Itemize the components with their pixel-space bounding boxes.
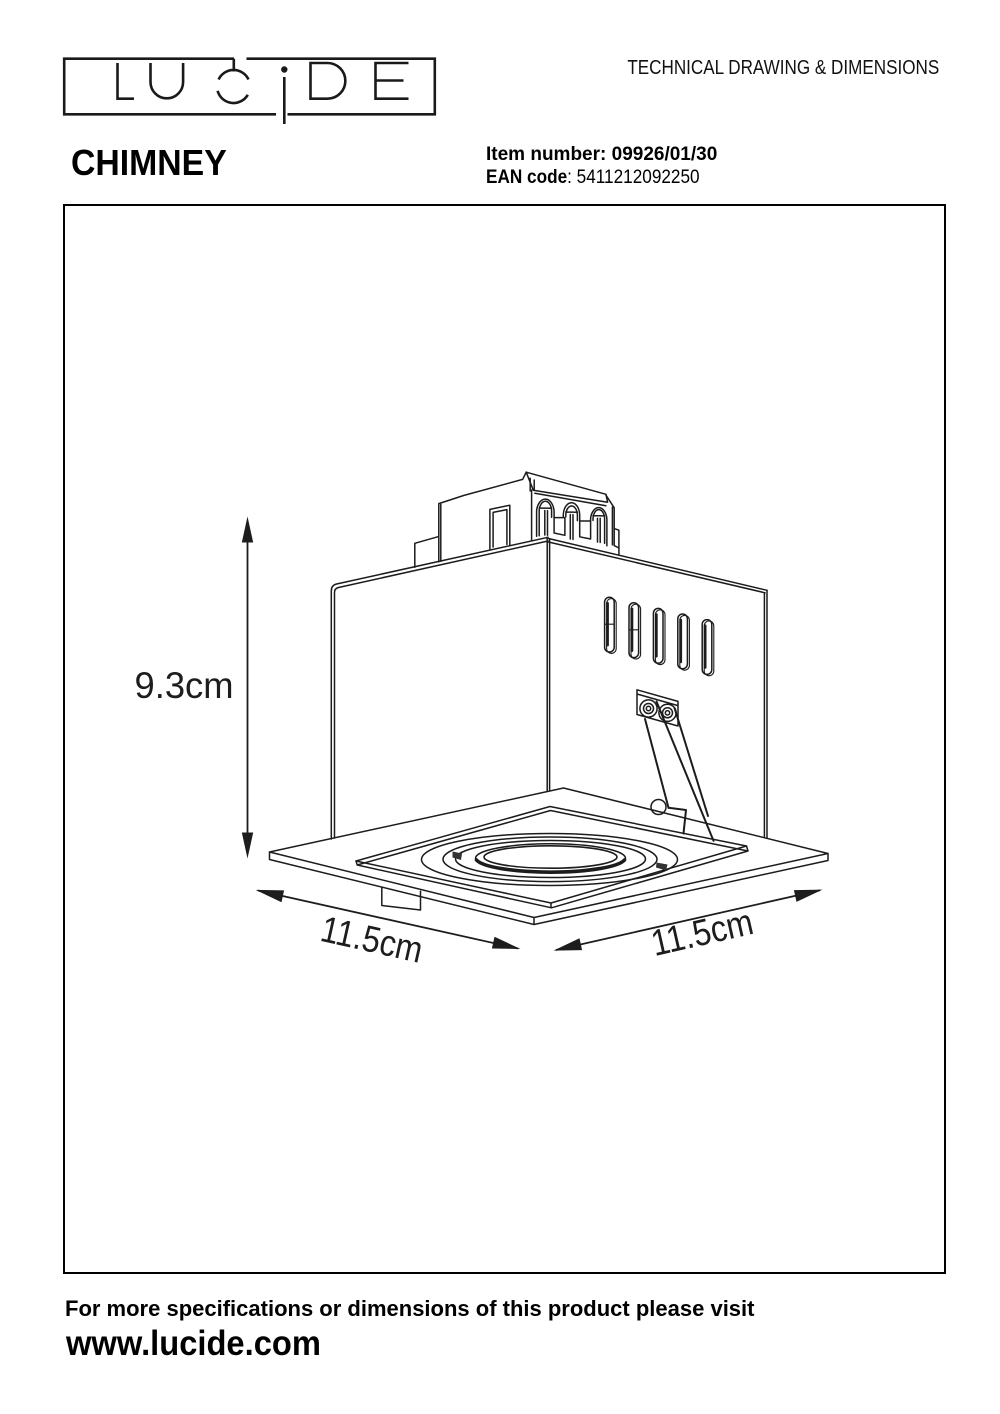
svg-text:11.5cm: 11.5cm [647,901,757,964]
svg-text:11.5cm: 11.5cm [317,908,426,970]
svg-text:9.3cm: 9.3cm [135,665,234,706]
